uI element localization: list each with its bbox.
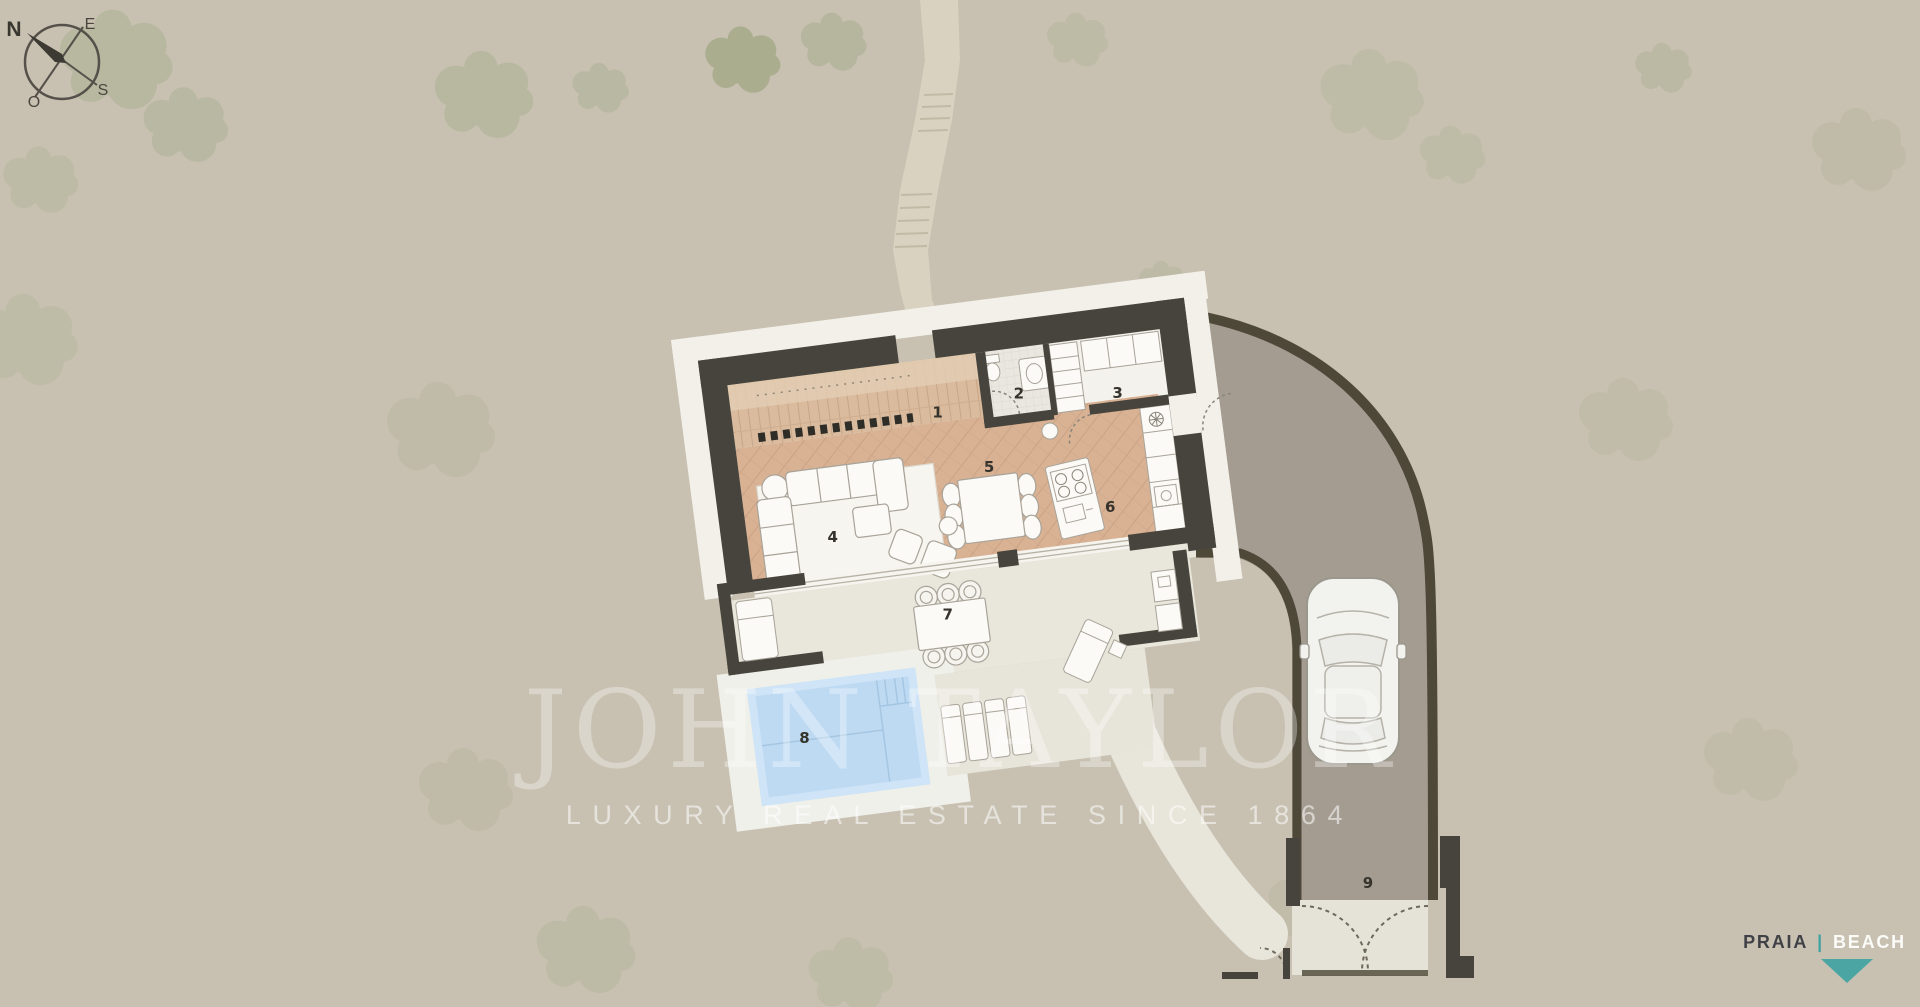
room-label-4: 4 [828,528,838,546]
room-label-3: 3 [1112,384,1122,402]
room-label-2: 2 [1014,385,1024,403]
room-label-6: 6 [1105,498,1115,516]
room-label-7: 7 [942,606,952,624]
room-label-5: 5 [984,458,994,476]
gate-recess [1292,898,1428,975]
gate-post-right [1440,836,1460,888]
boundary-wall-corner [1446,956,1474,978]
compass-east: E [85,16,96,33]
car-roof [1325,666,1381,718]
pool [747,667,931,806]
dining-table [957,473,1025,544]
ottoman [852,504,892,538]
site-plan-canvas: 9 [0,0,1920,1007]
gate-post-left [1286,838,1300,906]
car [1300,578,1406,764]
compass-west: O [28,94,40,111]
boundary-wall-right [1446,884,1460,960]
outdoor-dining-set [911,579,993,670]
room-label-8: 8 [799,729,809,747]
car-mirror-right [1397,644,1406,659]
alcove-daybed [735,597,778,661]
gate-threshold [1302,970,1428,976]
compass-north: N [6,18,21,41]
pedestrian-gate-stub [1283,948,1290,979]
boundary-wall-left [1222,972,1258,979]
site-plan: 9 [0,0,1920,1007]
room-label-1: 1 [932,403,942,421]
car-mirror-left [1300,644,1309,659]
room-label-9: 9 [1363,874,1373,892]
compass-south: S [98,82,109,99]
car-windshield [1319,634,1387,666]
